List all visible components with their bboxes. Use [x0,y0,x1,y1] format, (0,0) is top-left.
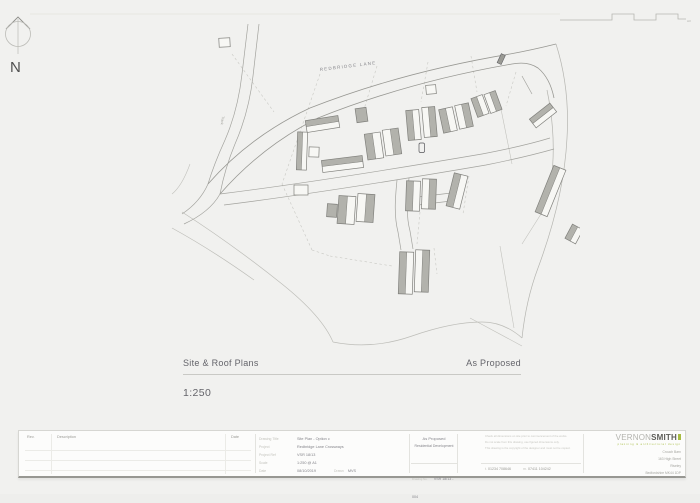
rev-row-rule [25,450,251,451]
landscape-lines [172,212,522,345]
caption: Site & Roof Plans As Proposed 1:250 [183,358,521,399]
development-type: Residential Development [411,444,457,448]
drawing-sheet: N A3 [0,0,700,494]
building [296,132,307,170]
drawn-label: Drawn [334,469,344,473]
revision-table: Rev. Description Date [23,434,253,474]
road-name-label: REDBRIDGE LANE [320,60,377,72]
date-header: Date [231,435,239,439]
road-internal [220,76,554,250]
address-line: Crouch Barn [585,449,681,456]
building [382,128,401,156]
field-label: Drawing Title [259,437,297,441]
building [364,132,383,160]
status-as-proposed: As Proposed [411,436,457,441]
address-line: Riseley [585,463,681,470]
building [398,252,413,294]
note: This drawing is the copyright of the des… [485,447,579,451]
building [337,195,356,224]
contact-line: t. 01234 708646 m. 07411 104242 [485,467,551,471]
field-value: VSR 18/13 [297,453,315,457]
building [439,107,458,133]
building [535,165,566,216]
description-header: Description [57,435,76,439]
field-label: Scale [259,461,297,465]
lane-marker [497,54,505,65]
firm-tagline: planning & architectural design [585,443,681,446]
sheet-size-label: A3 [687,19,691,23]
building [321,156,363,173]
tel-number: 01234 708646 [488,467,511,471]
building [309,147,319,157]
mobile-number: 07411 104242 [528,467,551,471]
building [414,250,429,292]
field-label: Project [259,445,297,449]
notes-column: Check all dimensions on site prior to co… [459,434,583,476]
field-value: Redbridge Lane Crossways [297,445,344,449]
building [529,103,556,128]
logo-smith: SMITH [651,433,677,442]
tb-divider [409,434,410,473]
north-label: N [10,59,21,76]
building [355,107,368,122]
field-value: Site Plan - Option c [297,437,330,441]
logo-accent-mark [678,434,681,440]
building [455,103,474,129]
track-label: Track [220,116,225,125]
status-column: As Proposed Residential Development Draw… [411,434,457,476]
building [426,85,437,95]
firm-logo: VERNONSMITH [585,433,681,442]
notes-divider [481,463,581,464]
drawing-scale: 1:250 [183,387,521,399]
drawing-info: Drawing Title Site Plan - Option c Proje… [259,435,409,475]
firm-address: Crouch Barn 163 High Street Riseley Bedf… [585,449,681,477]
caption-row: Site & Roof Plans As Proposed [183,358,521,375]
rev-row-rule [25,460,251,461]
rev-row-rule [25,470,251,471]
field-value: 1:250 @ A1 [297,461,317,465]
drawing-no-label: Drawing No. [412,477,427,481]
building [421,179,436,209]
building [219,38,230,48]
rev-col-divider [225,434,226,474]
address-line: Bedfordshire MK44 1DP [585,470,681,477]
field-label: Date [259,469,297,473]
status-divider [411,463,457,464]
tel-label: t. [485,467,487,471]
drawing-status: As Proposed [466,358,521,368]
tb-divider [457,434,458,473]
building [406,109,422,140]
tb-divider [583,434,584,473]
logo-vernon: VERNON [616,433,651,442]
building [565,224,580,244]
north-arrow-icon: N [6,17,31,76]
rev-header: Rev. [27,435,35,439]
note: Check all dimensions on site prior to co… [485,435,579,439]
building [294,185,308,195]
field-value: 08/10/2019 [297,469,316,473]
title-block: Rev. Description Date Drawing Title Site… [18,430,686,478]
site-plan: REDBRIDGE LANE Track [170,16,580,356]
building [446,173,468,209]
building [356,193,375,222]
car-symbol [419,143,425,153]
building [405,181,420,211]
rev-col-divider [51,434,52,474]
building [305,115,339,132]
field-label: Project Ref [259,453,297,457]
road-redbridge-lane [208,44,556,194]
mobile-label: m. [523,467,527,471]
firm-column: VERNONSMITH planning & architectural des… [585,433,681,477]
tb-divider [255,434,256,473]
plot-boundaries [232,54,516,274]
address-line: 163 High Street [585,456,681,463]
building [327,204,338,218]
buildings-group [219,38,580,295]
note: Do not scale from this drawing, use figu… [485,441,579,445]
drawing-title: Site & Roof Plans [183,358,259,368]
building [422,106,438,137]
drawn-value: MVS [348,469,356,473]
